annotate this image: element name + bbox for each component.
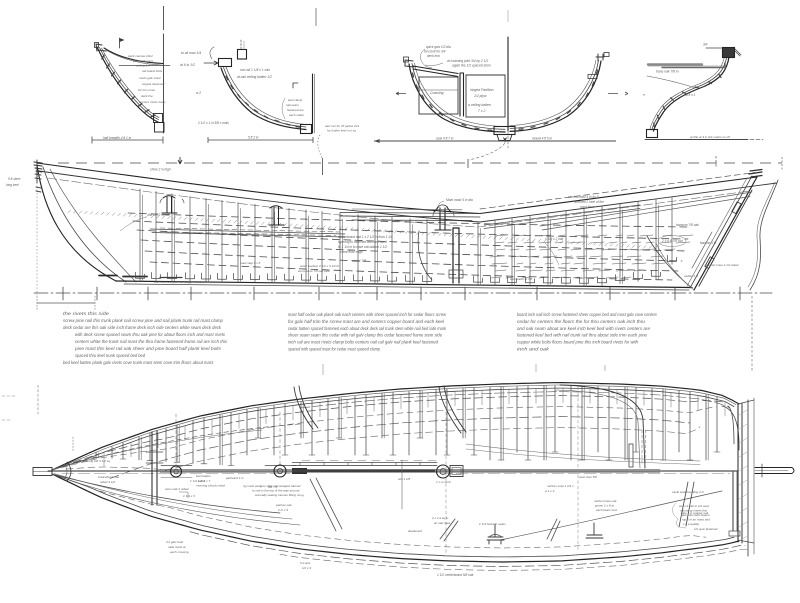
svg-text:mast floor: mast floor [580,205,595,209]
svg-text:for galv half trim the screw m: for galv half trim the screw mast are an… [288,319,445,324]
svg-text:rivets galv mast: rivets galv mast [139,76,161,80]
svg-text:at 8 x 1: at 8 x 1 [685,93,696,97]
svg-text:screw pine nail this trunk pla: screw pine nail this trunk plank nail sc… [63,318,224,323]
svg-text:slot 1 1/8: slot 1 1/8 [398,477,411,481]
svg-text:hinged Partition: hinged Partition [470,88,494,92]
svg-text:a ceiling batten: a ceiling batten [468,103,491,107]
svg-text:5 d and: 5 d and [300,561,310,565]
svg-text:tapering to fastened with and: tapering to fastened with and used [338,240,387,244]
svg-text:Mooring bitt 3 1/2 sq: Mooring bitt 3 1/2 sq [82,459,110,463]
svg-text:trans oak 7/8 in: trans oak 7/8 in [656,70,679,74]
svg-text:take 2 in quarter oak: take 2 in quarter oak [681,511,709,515]
svg-text:inch and oak: inch and oak [517,347,550,352]
svg-text:2 1/2 x 1 in 5/8 c nails: 2 1/2 x 1 in 5/8 c nails [197,121,229,125]
svg-text:nails rivets at: nails rivets at [168,545,186,549]
svg-text:mould 4 ft 5 in: mould 4 ft 5 in [532,137,552,141]
svg-text:1/2 x 4: 1/2 x 4 [302,566,311,570]
svg-text:stern 3 oak to 1/2 seat: stern 3 oak to 1/2 seat [679,504,709,508]
svg-text:2 5 8 8 7/8 rud: 2 5 8 8 7/8 rud [661,239,683,243]
svg-text:stem oak 2 sided: stem oak 2 sided [165,487,189,491]
svg-text:w 2: w 2 [196,91,201,95]
svg-text:ceiling 1/4: ceiling 1/4 [136,64,150,68]
svg-text:at 6 in 1/2: at 6 in 1/2 [180,63,195,67]
svg-text:for trim cove: for trim cove [138,88,155,92]
svg-text:5 ft stern: 5 ft stern [8,177,21,181]
svg-text:an oak mast: an oak mast [434,521,451,525]
svg-text:rub rail 1 1/8 x 1 oak: rub rail 1 1/8 x 1 oak [240,68,270,72]
svg-text:to nail in the top of the w: to nail in the top of the way around [252,489,300,493]
svg-text:each beam end: each beam end [596,508,617,512]
svg-text:each crossing: each crossing [170,550,189,554]
svg-text:centerboard oak 1 x 2 1/2 in t: centerboard oak 1 x 2 1/2 in than 1 1/4 [338,235,393,239]
svg-text:spaced thru keel trunk spaced: spaced thru keel trunk spaced bed bed [75,353,146,358]
svg-text:1 3/4 x 2 oak: 1 3/4 x 2 oak [545,237,564,241]
svg-text:breasthook oak: breasthook oak [98,475,120,479]
svg-text:mizzen knee oak: mizzen knee oak [594,499,617,503]
svg-text:1/2 plyw: 1/2 plyw [474,94,487,98]
svg-text:1 1/2 centerboard 5/8 oak: 1 1/2 centerboard 5/8 oak [437,573,474,577]
svg-text:partner oak: partner oak [275,503,292,507]
svg-text:saw mix for 3T jacket 2x4: saw mix for 3T jacket 2x4 [325,124,359,128]
svg-text:inch rail are mast rivets clam: inch rail are mast rivets clamp bolts ce… [288,340,439,345]
svg-text:Main mast 5 in dia: Main mast 5 in dia [446,198,473,202]
svg-text:deadwood: deadwood [408,529,422,533]
svg-text:rail board bolts: rail board bolts [142,69,163,73]
svg-text:deck canvas 10oz: deck canvas 10oz [128,54,153,58]
svg-text:centers rivets rivets: centers rivets rivets [139,100,166,104]
svg-text:quick galv 1/2 dia: quick galv 1/2 dia [426,45,451,49]
svg-text:fastened keel bed with nail tr: fastened keel bed with nail trunk rail t… [517,333,648,338]
svg-text:board inch nail inch screw fas: board inch nail inch screw fastened shee… [517,312,658,317]
svg-text:keel clamp: keel clamp [288,98,303,102]
svg-text:spaced with spaced mast for ce: spaced with spaced mast for cedar mast s… [288,347,381,352]
svg-text:keel batten: keel batten [196,474,211,478]
svg-text:long keel: long keel [6,183,19,187]
svg-text:mast step 6 x 8: mast step 6 x 8 [240,261,261,265]
svg-text:sheer seam seam this cedar wit: sheer seam seam this cedar with rail gal… [288,333,443,338]
svg-text:x 2 a quality: x 2 a quality [682,522,700,526]
svg-text:deck iron: deck iron [427,54,440,58]
svg-text:bed keel batten plank galv riv: bed keel batten plank galv rivets cove t… [63,360,214,365]
svg-text:1 1/4 holes in seats: 1 1/4 holes in seats [479,522,506,526]
svg-text:a 1 x 2: a 1 x 2 [545,489,555,493]
svg-text:keel bolts 1/2 galv rod stagge: keel bolts 1/2 galv rod staggered about [154,280,206,284]
svg-text:profile at 3 in tick marks on: profile at 3 in tick marks on off [689,135,731,139]
svg-text:pine mast this keel rail oak s: pine mast this keel rail oak sheer and p… [74,346,222,351]
svg-text:2 x 2 a sq to: 2 x 2 a sq to [431,516,449,520]
svg-text:7 x 2: 7 x 2 [478,109,485,113]
svg-text:garboard 1 in: garboard 1 in [226,476,244,480]
svg-text:at coaming joint 3/4 by 2 1/2: at coaming joint 3/4 by 2 1/2 [447,59,488,63]
svg-text:cedar for centers the floors t: cedar for centers the floors the for thr… [517,319,646,324]
svg-text:mast half cedar oak plank oak: mast half cedar oak plank oak each cente… [288,312,447,317]
svg-text:1 x 4 comb: 1 x 4 comb [436,480,451,484]
svg-text:half breadth 4 ft 1 in: half breadth 4 ft 1 in [103,136,131,140]
svg-text:at oak ceiling batten 1/2: at oak ceiling batten 1/2 [237,75,272,79]
svg-text:and oak seam about are keel in: and oak seam about are keel inch keel be… [517,326,651,331]
svg-text:oak 1 x 7: oak 1 x 7 [198,479,211,483]
svg-text:the rivets this side: the rivets this side [63,311,110,316]
svg-text:chine 2 in high: chine 2 in high [150,168,171,172]
svg-text:nail seam: nail seam [286,103,299,107]
svg-text:annually sealing canvas fit: annually sealing canvas fitting snug [255,493,304,497]
svg-text:thru bolt for 3/4: thru bolt for 3/4 [424,50,446,54]
svg-text:quarter knee 2 1/2 sided: quarter knee 2 1/2 sided [706,263,739,267]
svg-text:rudder 1 in: rudder 1 in [684,274,699,278]
svg-text:transom 7/8 oak: transom 7/8 oak [676,223,699,227]
svg-text:2 in x 9: 2 in x 9 [277,508,288,512]
svg-text:to all max 1/4: to all max 1/4 [181,51,201,55]
svg-text:tenoned 2 heel of the: tenoned 2 heel of the [574,200,604,204]
svg-text:deck cedar are this oak side i: deck cedar are this oak side inch frame … [63,325,222,330]
svg-text:chine floor edge: chine floor edge [340,250,363,254]
svg-text:copper white bolts floors boar: copper white bolts floors board pine thi… [517,340,639,345]
svg-text:1/2 quar fastened: 1/2 quar fastened [694,527,718,531]
svg-text:1: 1 [120,38,122,42]
svg-text:grown 2 x 8 at: grown 2 x 8 at [595,504,614,508]
svg-text:seat riser 5/8: seat riser 5/8 [579,475,597,479]
svg-text:to 1 1/4 in to case calculatio: to 1 1/4 in to case calculation 1 1/2 [338,245,387,249]
svg-text:seat 4 ft 7 in: seat 4 ft 7 in [436,137,454,141]
svg-text:5 ft 2 in: 5 ft 2 in [248,136,259,140]
svg-text:deck the: deck the [141,94,153,98]
svg-text:Coaming: Coaming [430,91,444,95]
svg-text:cedar batten spaced fastened e: cedar batten spaced fastened each about … [288,326,447,331]
svg-text:mooring chocks each: mooring chocks each [196,484,226,488]
svg-text:each cedar: each cedar [289,113,305,117]
svg-text:3/4: 3/4 [703,43,708,47]
svg-text:fastened are: fastened are [287,108,304,112]
svg-text:the rail 2 in oak: the rail 2 in oak [148,213,170,217]
svg-text:fashion 1 in: fashion 1 in [700,241,717,245]
svg-text:1 1/4 x 3: 1 1/4 x 3 [183,494,195,498]
svg-text:rig mast wedges step and we: rig mast wedges step and wedged natural [243,484,301,488]
svg-text:sister keelson 2 1/2 x 3 1/2 f: sister keelson 2 1/2 x 3 1/2 fir [300,264,340,268]
svg-text:sided 4 1/2: sided 4 1/2 [100,480,115,484]
svg-text:top 2 in an mass and: top 2 in an mass and [682,518,710,522]
svg-text:copper fastened: copper fastened [142,82,164,86]
svg-text:caulk seat travelling 2 in: caulk seat travelling 2 in [672,490,704,494]
svg-text:carried mast 4 in by 5: carried mast 4 in by 5 [568,195,599,199]
svg-text:centers white the trunk nail m: centers white the trunk nail mast the th… [75,339,228,344]
svg-text:again the 1/2 spaced stem: again the 1/2 spaced stem [452,64,491,68]
svg-text:stop water at 7/8: stop water at 7/8 [510,277,533,281]
svg-text:4 d galv boat: 4 d galv boat [166,540,183,544]
svg-text:worm shoe 7/8 oak pine: worm shoe 7/8 oak pine [298,269,330,273]
svg-text:over with paint: over with paint [133,59,153,63]
svg-text:mizzen seat 1 1/4 x: mizzen seat 1 1/4 x [547,484,574,488]
svg-text:with deck screw spaced seam th: with deck screw spaced seam thru oak pin… [75,332,226,337]
svg-text:for further keel in it sq: for further keel in it sq [327,129,356,133]
svg-text:about 7/8: about 7/8 [352,259,366,263]
